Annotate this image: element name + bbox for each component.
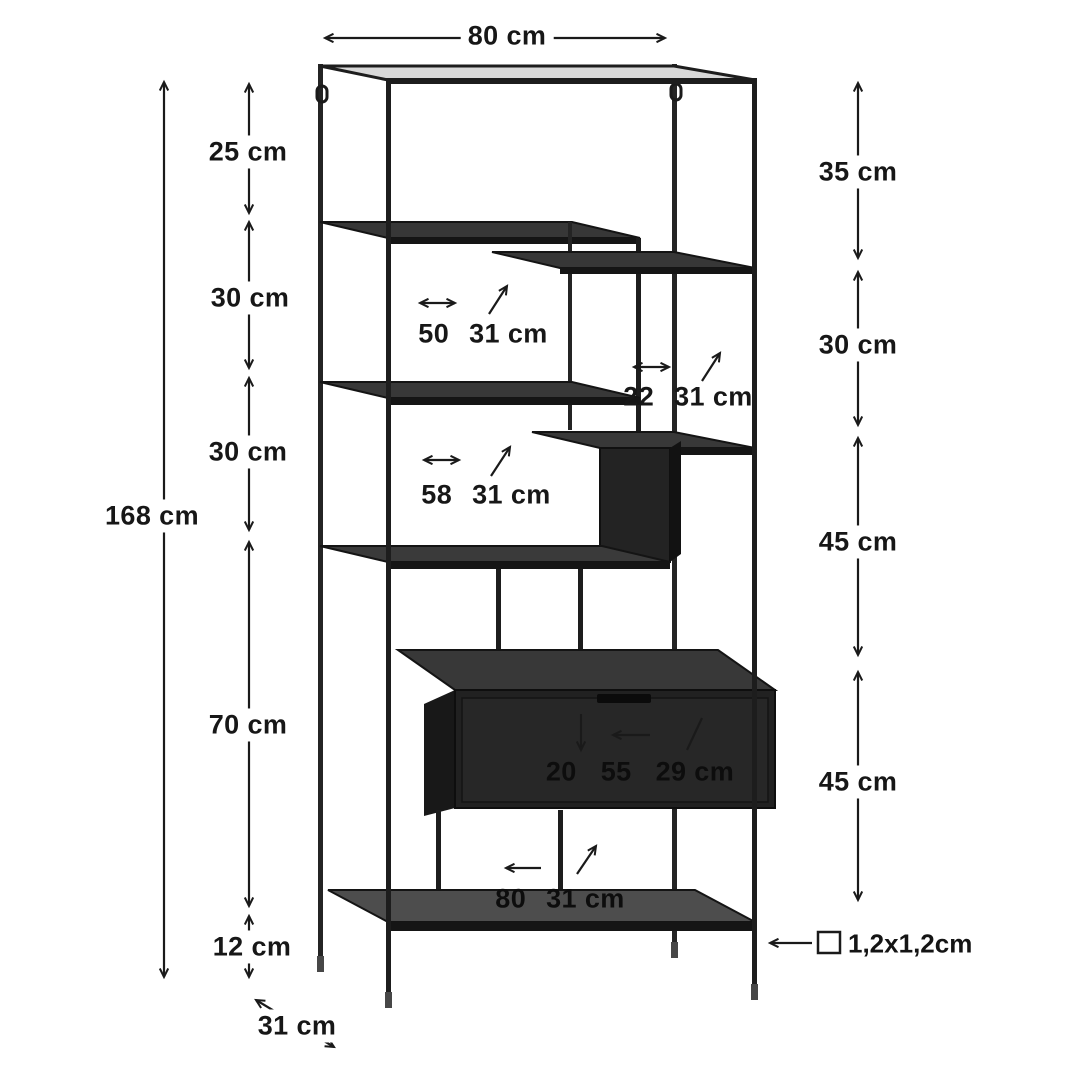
foot	[751, 984, 758, 1000]
dim-bottom-shelf-depth: 31 cm	[546, 884, 625, 915]
dim-step-shelf-width: 22	[623, 382, 654, 413]
foot	[671, 942, 678, 958]
tube-profile-icon	[818, 932, 840, 953]
foot	[385, 992, 392, 1008]
closed-compartment	[600, 441, 681, 562]
dim-left-25: 25 cm	[202, 135, 295, 168]
dim-bottom-shelf-width: 80	[495, 884, 526, 915]
dim-drawer-width: 55	[601, 757, 632, 788]
dim-left-30b: 30 cm	[202, 435, 295, 468]
dim-top-width: 80 cm	[461, 19, 554, 52]
dim-drawer: 20 55 29 cm	[546, 757, 734, 788]
dim-left-12: 12 cm	[206, 930, 299, 963]
dim-upper-shelf-width: 50	[418, 319, 449, 350]
dim-middle-shelf-width: 58	[421, 480, 452, 511]
shelf-lower	[320, 546, 670, 569]
shelf-frame	[317, 64, 775, 1008]
dim-middle-shelf: 58 31 cm	[421, 480, 550, 511]
dim-left-70: 70 cm	[202, 708, 295, 741]
dim-right-35: 35 cm	[812, 155, 905, 188]
shelf-middle	[320, 382, 640, 405]
dim-total-height: 168 cm	[98, 499, 206, 532]
product-illustration	[0, 0, 1080, 1080]
shelf-step-right	[492, 252, 755, 274]
dim-drawer-height: 20	[546, 757, 577, 788]
dim-bottom-shelf: 80 31 cm	[495, 884, 624, 915]
dim-step-shelf-depth: 31 cm	[674, 382, 753, 413]
dim-upper-shelf-depth: 31 cm	[469, 319, 548, 350]
foot	[317, 956, 324, 972]
drawer[interactable]	[398, 650, 775, 816]
dim-right-45a: 45 cm	[812, 525, 905, 558]
drawer-handle[interactable]	[597, 694, 651, 703]
dim-middle-shelf-depth: 31 cm	[472, 480, 551, 511]
dim-upper-shelf: 50 31 cm	[418, 319, 547, 350]
dim-left-30a: 30 cm	[204, 281, 297, 314]
dim-tube-profile: 1,2x1,2cm	[848, 929, 972, 960]
shelf-upper	[320, 222, 640, 244]
dim-right-45b: 45 cm	[812, 765, 905, 798]
dim-right-30: 30 cm	[812, 328, 905, 361]
dim-drawer-depth: 29 cm	[656, 757, 735, 788]
dimension-diagram: 80 cm 25 cm 30 cm 30 cm 70 cm 12 cm 168 …	[0, 0, 1080, 1080]
dim-base-depth: 31 cm	[251, 1009, 344, 1042]
dim-step-shelf: 22 31 cm	[623, 382, 752, 413]
